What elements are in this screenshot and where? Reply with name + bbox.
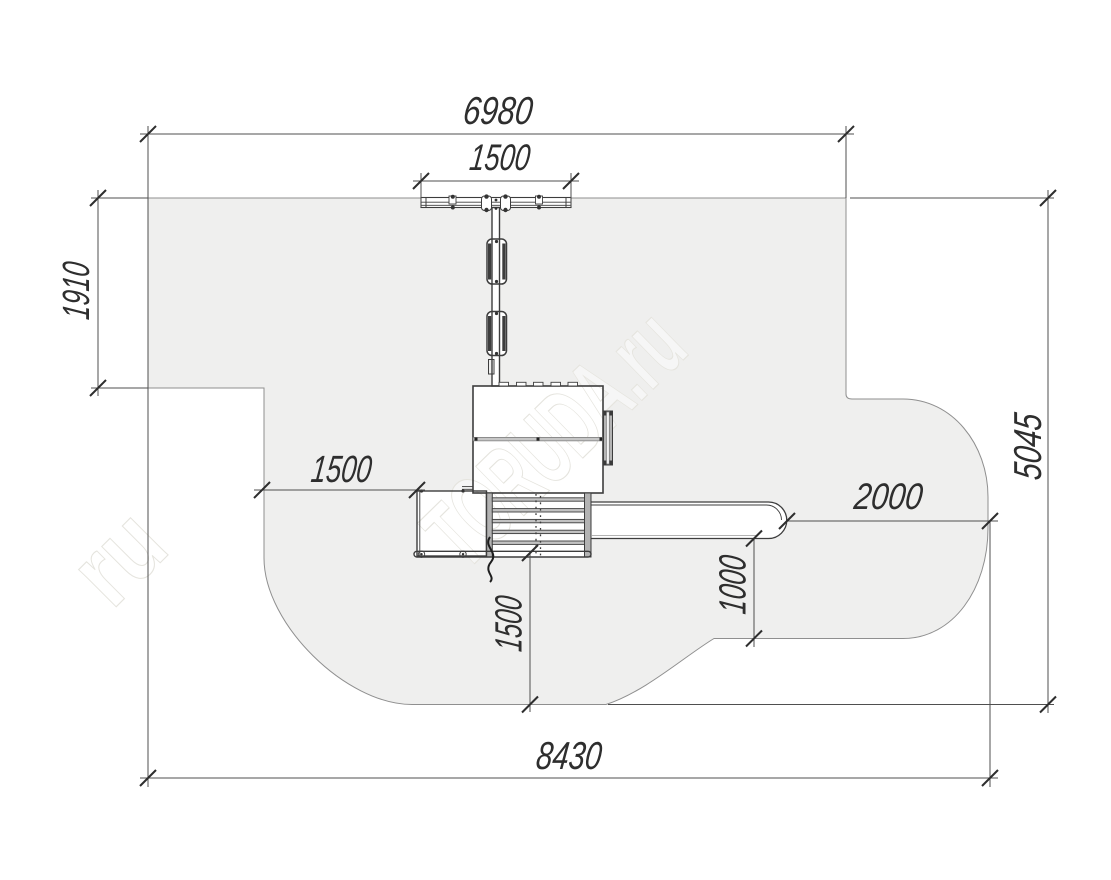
svg-text:5045: 5045 <box>1007 411 1050 482</box>
svg-text:1500: 1500 <box>309 448 374 491</box>
svg-text:8430: 8430 <box>534 735 604 778</box>
svg-text:1910: 1910 <box>55 259 98 321</box>
svg-text:2000: 2000 <box>851 475 925 517</box>
svg-text:1500: 1500 <box>488 593 531 653</box>
svg-text:6980: 6980 <box>461 90 535 133</box>
svg-text:1500: 1500 <box>468 136 533 178</box>
svg-text:1000: 1000 <box>712 553 755 616</box>
